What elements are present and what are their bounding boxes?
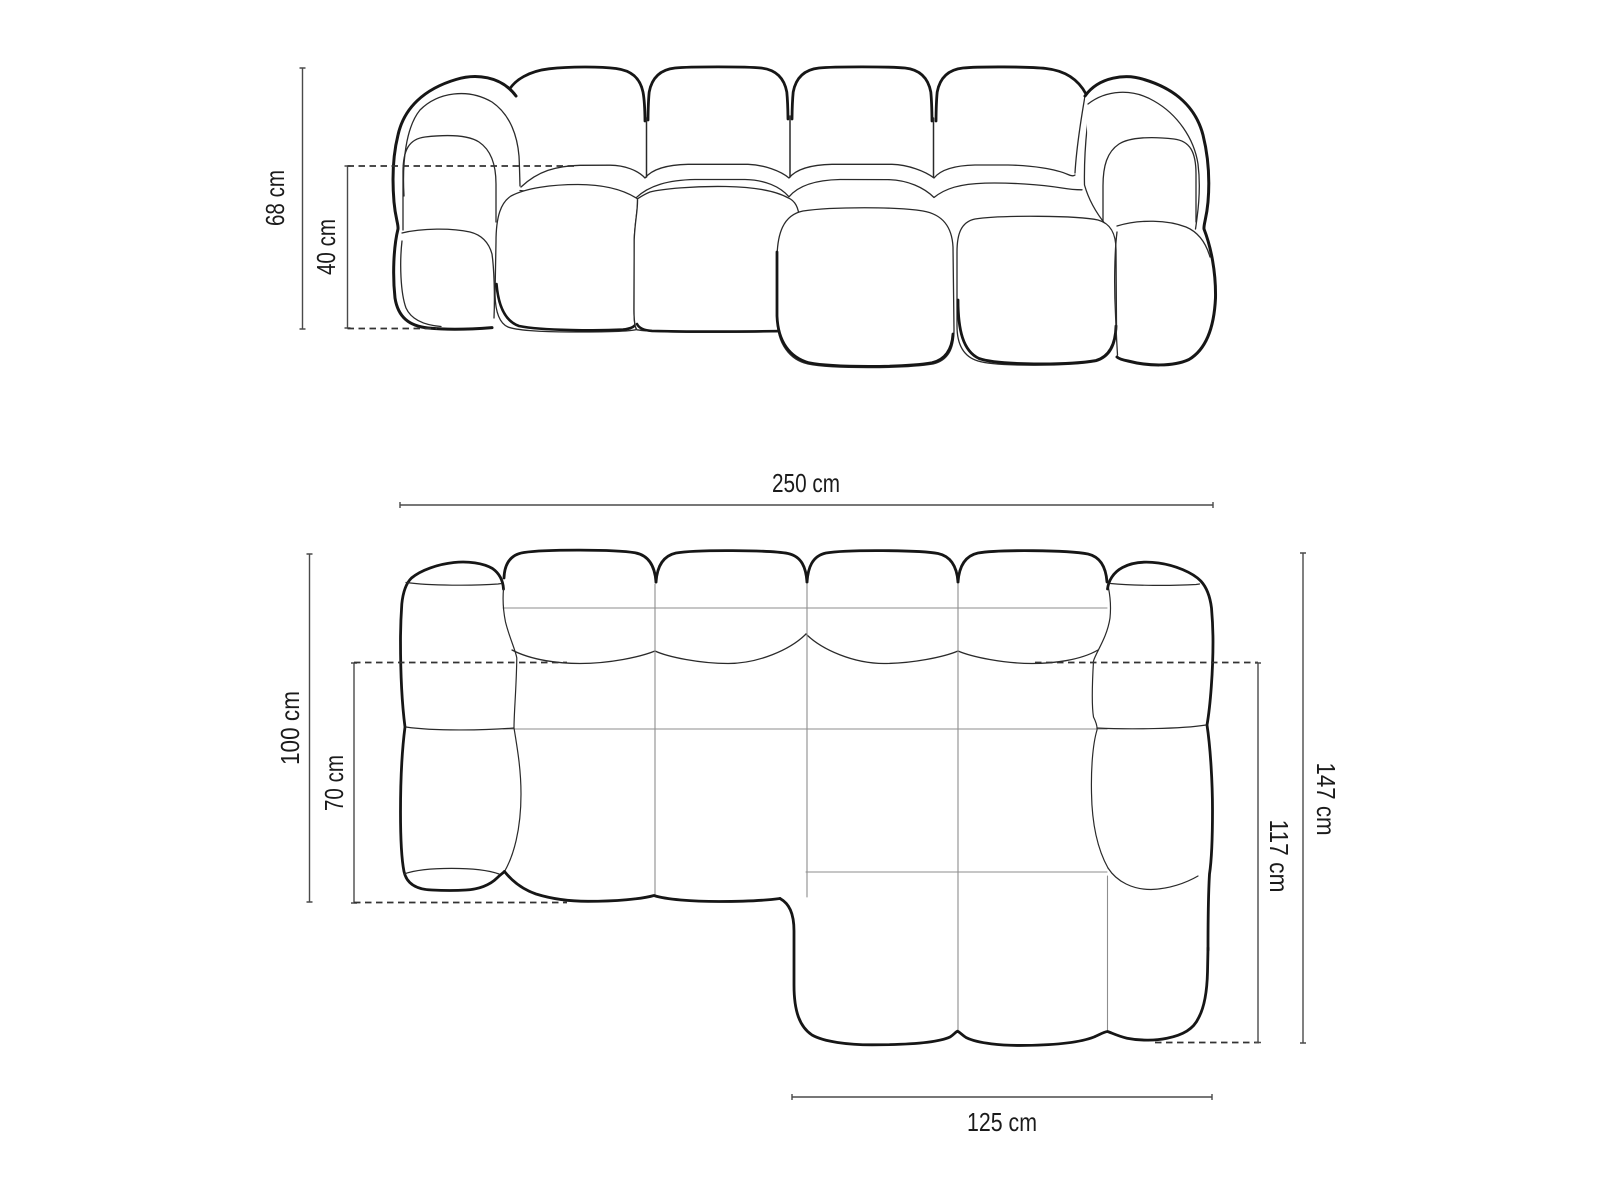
svg-text:100 cm: 100 cm: [275, 691, 305, 765]
svg-text:250 cm: 250 cm: [772, 468, 840, 498]
svg-text:147 cm: 147 cm: [1311, 763, 1341, 836]
svg-text:70 cm: 70 cm: [319, 755, 349, 811]
svg-text:40 cm: 40 cm: [311, 219, 341, 275]
svg-text:68 cm: 68 cm: [260, 170, 290, 226]
svg-text:125 cm: 125 cm: [967, 1107, 1037, 1137]
svg-text:117 cm: 117 cm: [1264, 820, 1294, 893]
